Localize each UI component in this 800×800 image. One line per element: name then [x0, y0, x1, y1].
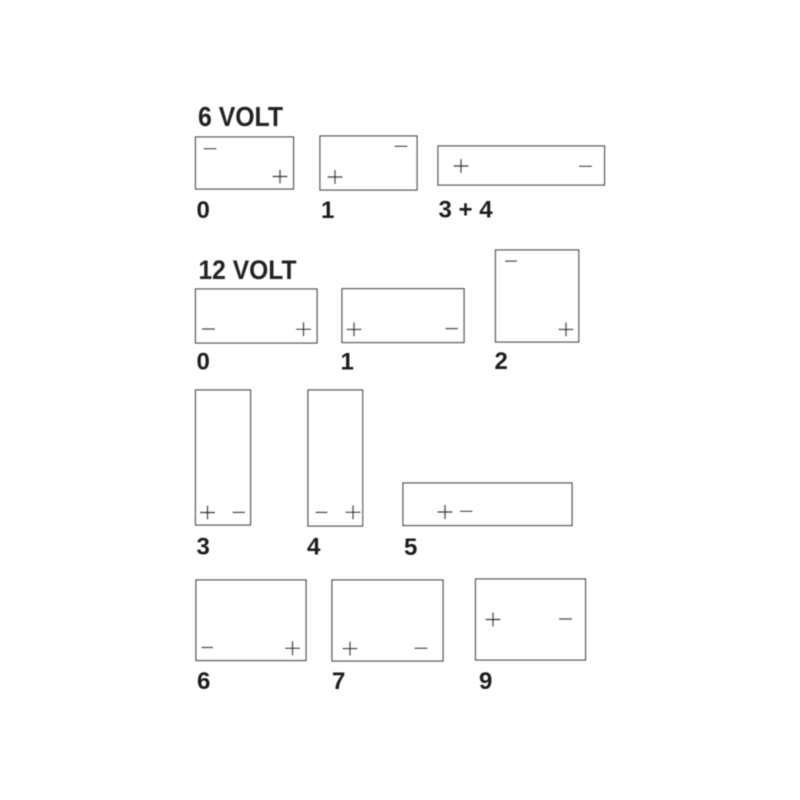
svg-text:1: 1 [321, 197, 334, 224]
svg-text:5: 5 [404, 534, 417, 561]
svg-text:4: 4 [307, 534, 321, 561]
svg-text:3: 3 [197, 534, 210, 561]
svg-text:0: 0 [197, 349, 210, 376]
svg-text:0: 0 [197, 197, 210, 224]
svg-text:6 VOLT: 6 VOLT [198, 101, 283, 132]
svg-text:1: 1 [341, 349, 354, 376]
svg-text:12 VOLT: 12 VOLT [199, 255, 297, 285]
svg-text:6: 6 [197, 668, 210, 695]
svg-text:2: 2 [495, 348, 508, 375]
svg-text:3 + 4: 3 + 4 [439, 197, 494, 224]
svg-text:7: 7 [332, 668, 345, 695]
svg-text:9: 9 [479, 668, 492, 695]
